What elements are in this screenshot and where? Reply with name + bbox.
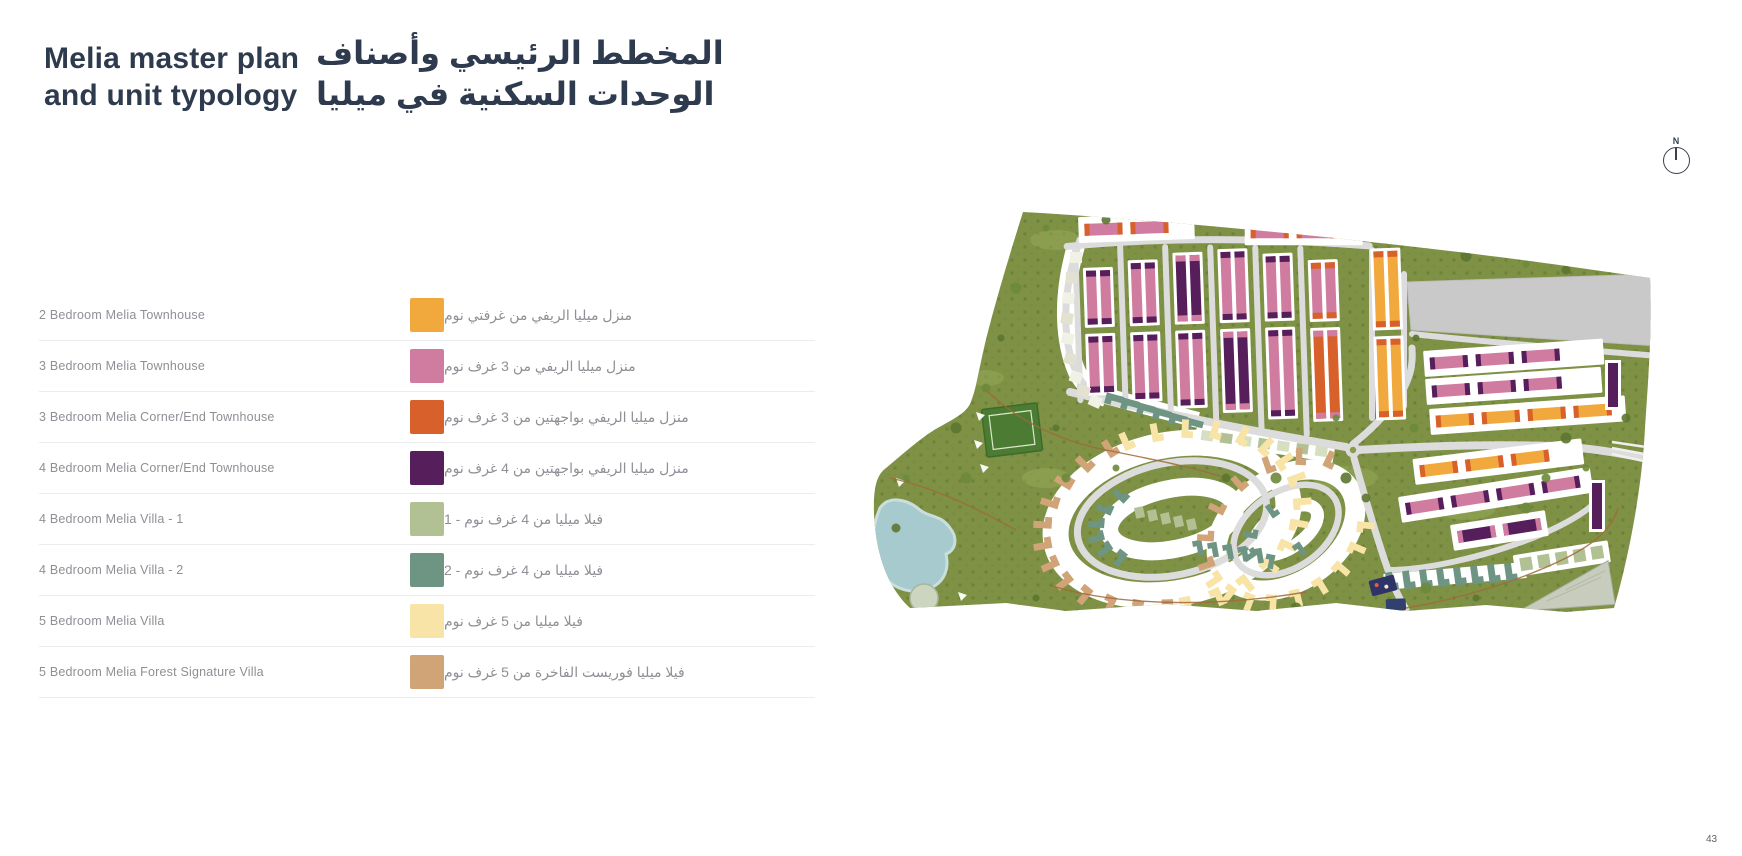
legend-label-ar: فيلا ميليا من 4 غرف نوم - 2 bbox=[444, 562, 815, 579]
legend-color-swatch bbox=[410, 400, 444, 434]
page-title-en-line1: Melia master plan bbox=[44, 40, 299, 77]
legend-label-ar: منزل ميليا الريفي من 3 غرف نوم bbox=[444, 358, 815, 375]
legend-label-ar: منزل ميليا الريفي بواجهتين من 4 غرف نوم bbox=[444, 460, 815, 477]
legend-color-swatch bbox=[410, 298, 444, 332]
legend-label-ar: منزل ميليا الريفي من غرفتي نوم bbox=[444, 307, 815, 324]
legend-row: 3 Bedroom Melia Townhouse منزل ميليا الر… bbox=[39, 341, 815, 392]
legend-label-en: 5 Bedroom Melia Villa bbox=[39, 614, 410, 628]
page-title-ar-line1: المخطط الرئيسي وأصناف bbox=[316, 33, 816, 74]
legend-row: 4 Bedroom Melia Villa - 2 فيلا ميليا من … bbox=[39, 545, 815, 596]
legend-row: 5 Bedroom Melia Villa فيلا ميليا من 5 غر… bbox=[39, 596, 815, 647]
legend-row: 3 Bedroom Melia Corner/End Townhouse منز… bbox=[39, 392, 815, 443]
master-plan-map bbox=[866, 178, 1666, 614]
legend-color-swatch bbox=[410, 502, 444, 536]
master-plan-illustration bbox=[866, 178, 1666, 614]
legend-color-swatch bbox=[410, 553, 444, 587]
legend-label-en: 4 Bedroom Melia Corner/End Townhouse bbox=[39, 461, 410, 475]
legend-color-swatch bbox=[410, 349, 444, 383]
legend-row: 2 Bedroom Melia Townhouse منزل ميليا الر… bbox=[39, 290, 815, 341]
north-label: N bbox=[1662, 136, 1690, 146]
compass-dial bbox=[1663, 147, 1690, 174]
legend-color-swatch bbox=[410, 451, 444, 485]
legend-color-swatch bbox=[410, 604, 444, 638]
legend-label-ar: منزل ميليا الريفي بواجهتين من 3 غرف نوم bbox=[444, 409, 815, 426]
page-title-ar-line2: الوحدات السكنية في ميليا bbox=[316, 74, 816, 115]
legend-label-en: 2 Bedroom Melia Townhouse bbox=[39, 308, 410, 322]
legend-label-ar: فيلا ميليا فوريست الفاخرة من 5 غرف نوم bbox=[444, 664, 815, 681]
legend-label-en: 3 Bedroom Melia Townhouse bbox=[39, 359, 410, 373]
legend-color-swatch bbox=[410, 655, 444, 689]
page-title-ar: المخطط الرئيسي وأصناف الوحدات السكنية في… bbox=[316, 33, 816, 115]
legend-label-en: 4 Bedroom Melia Villa - 2 bbox=[39, 563, 410, 577]
legend-label-en: 4 Bedroom Melia Villa - 1 bbox=[39, 512, 410, 526]
unit-typology-legend: 2 Bedroom Melia Townhouse منزل ميليا الر… bbox=[39, 290, 815, 698]
legend-label-ar: فيلا ميليا من 5 غرف نوم bbox=[444, 613, 815, 630]
legend-row: 5 Bedroom Melia Forest Signature Villa ف… bbox=[39, 647, 815, 698]
legend-row: 4 Bedroom Melia Villa - 1 فيلا ميليا من … bbox=[39, 494, 815, 545]
north-compass-icon: N bbox=[1662, 136, 1690, 174]
page-title-en-line2: and unit typology bbox=[44, 77, 299, 114]
page-title-en: Melia master plan and unit typology bbox=[44, 40, 299, 114]
legend-label-ar: فيلا ميليا من 4 غرف نوم - 1 bbox=[444, 511, 815, 528]
page-number: 43 bbox=[1706, 834, 1717, 845]
legend-label-en: 5 Bedroom Melia Forest Signature Villa bbox=[39, 665, 410, 679]
legend-label-en: 3 Bedroom Melia Corner/End Townhouse bbox=[39, 410, 410, 424]
legend-row: 4 Bedroom Melia Corner/End Townhouse منز… bbox=[39, 443, 815, 494]
